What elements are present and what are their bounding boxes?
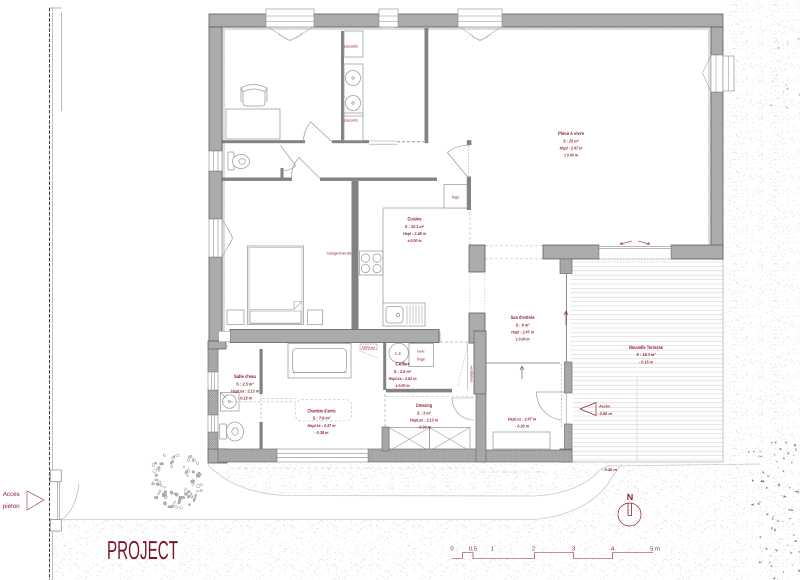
svg-text:PROJECT: PROJECT (107, 535, 178, 565)
svg-text:rangements: rangements (327, 251, 352, 256)
svg-text:S : 25 m²: S : 25 m² (563, 138, 579, 143)
svg-text:S : 3 m²: S : 3 m² (417, 410, 432, 415)
svg-text:Hspl : 2.47 m: Hspl : 2.47 m (511, 330, 534, 335)
svg-text:Chambre d'amis: Chambre d'amis (308, 408, 336, 414)
svg-text:placards: placards (344, 119, 358, 123)
svg-text:S : 2.5 m²: S : 2.5 m² (236, 381, 254, 386)
svg-text:Accès: Accès (3, 491, 20, 498)
svg-text:piéton: piéton (3, 503, 20, 510)
svg-text:Cellier: Cellier (396, 362, 410, 368)
svg-text:Hspl : 2.47 m: Hspl : 2.47 m (560, 146, 583, 151)
svg-text:- 0.30 m: - 0.30 m (417, 425, 431, 430)
svg-text:frigo: frigo (452, 195, 460, 200)
svg-text:- 0.45 m: - 0.45 m (602, 467, 618, 472)
svg-text:2: 2 (532, 546, 535, 553)
svg-text:- 0.15 m: - 0.15 m (238, 396, 252, 401)
svg-text:placards: placards (344, 45, 358, 49)
svg-text:0,5: 0,5 (469, 546, 478, 553)
svg-text:- 0.38 m: - 0.38 m (315, 430, 329, 435)
svg-text:Sas d'entrée: Sas d'entrée (511, 315, 535, 321)
svg-text:Hspl.ss : 2.62 m: Hspl.ss : 2.62 m (389, 376, 417, 381)
svg-text:Hspl.ss : 2.47 m: Hspl.ss : 2.47 m (308, 423, 336, 428)
svg-text:linge: linge (417, 357, 425, 362)
svg-text:- 0.15 m: - 0.15 m (639, 359, 653, 364)
svg-text:Accès: Accès (599, 404, 610, 409)
svg-text:- 0.30 m: - 0.30 m (515, 423, 529, 428)
svg-text:Dressing: Dressing (416, 403, 432, 409)
svg-text:Hspl.ss : 2.13 m: Hspl.ss : 2.13 m (231, 389, 259, 394)
svg-text:Nouvelle Terrasse: Nouvelle Terrasse (629, 345, 663, 351)
svg-text:Salle d'eau: Salle d'eau (234, 374, 256, 380)
svg-text:S : 2.6 m²: S : 2.6 m² (394, 369, 412, 374)
svg-text:5 m: 5 m (650, 546, 660, 553)
svg-text:Hspl.ss : 2.13 m: Hspl.ss : 2.13 m (410, 418, 438, 423)
svg-text:ventilation: ventilation (470, 366, 474, 383)
svg-text:C.E.: C.E. (395, 351, 403, 356)
svg-text:lave: lave (417, 349, 424, 354)
svg-text:S : 10.1 m²: S : 10.1 m² (405, 224, 425, 229)
svg-text:S : 18.3 m²: S : 18.3 m² (636, 352, 656, 357)
svg-text:- 0.00 m: - 0.00 m (597, 411, 613, 416)
svg-text:S : 7.8 m²: S : 7.8 m² (313, 416, 331, 421)
svg-text:S : 9 m²: S : 9 m² (516, 322, 531, 327)
svg-text:1: 1 (491, 546, 494, 553)
svg-text:Cuisine: Cuisine (408, 217, 422, 223)
svg-text:N: N (627, 492, 634, 502)
svg-text:± 0.00 m: ± 0.00 m (564, 153, 578, 158)
svg-text:Pièce à vivre: Pièce à vivre (558, 131, 584, 137)
svg-text:Hspl : 2.48 m: Hspl : 2.48 m (403, 231, 426, 236)
svg-text:± 0.00 m: ± 0.00 m (408, 238, 422, 243)
svg-text:± 0.00 m: ± 0.00 m (396, 383, 410, 388)
svg-text:± 0.00 m: ± 0.00 m (516, 337, 530, 342)
svg-text:tableau: tableau (362, 345, 375, 349)
svg-text:Hspl.ss : 2.47 m: Hspl.ss : 2.47 m (508, 416, 536, 421)
